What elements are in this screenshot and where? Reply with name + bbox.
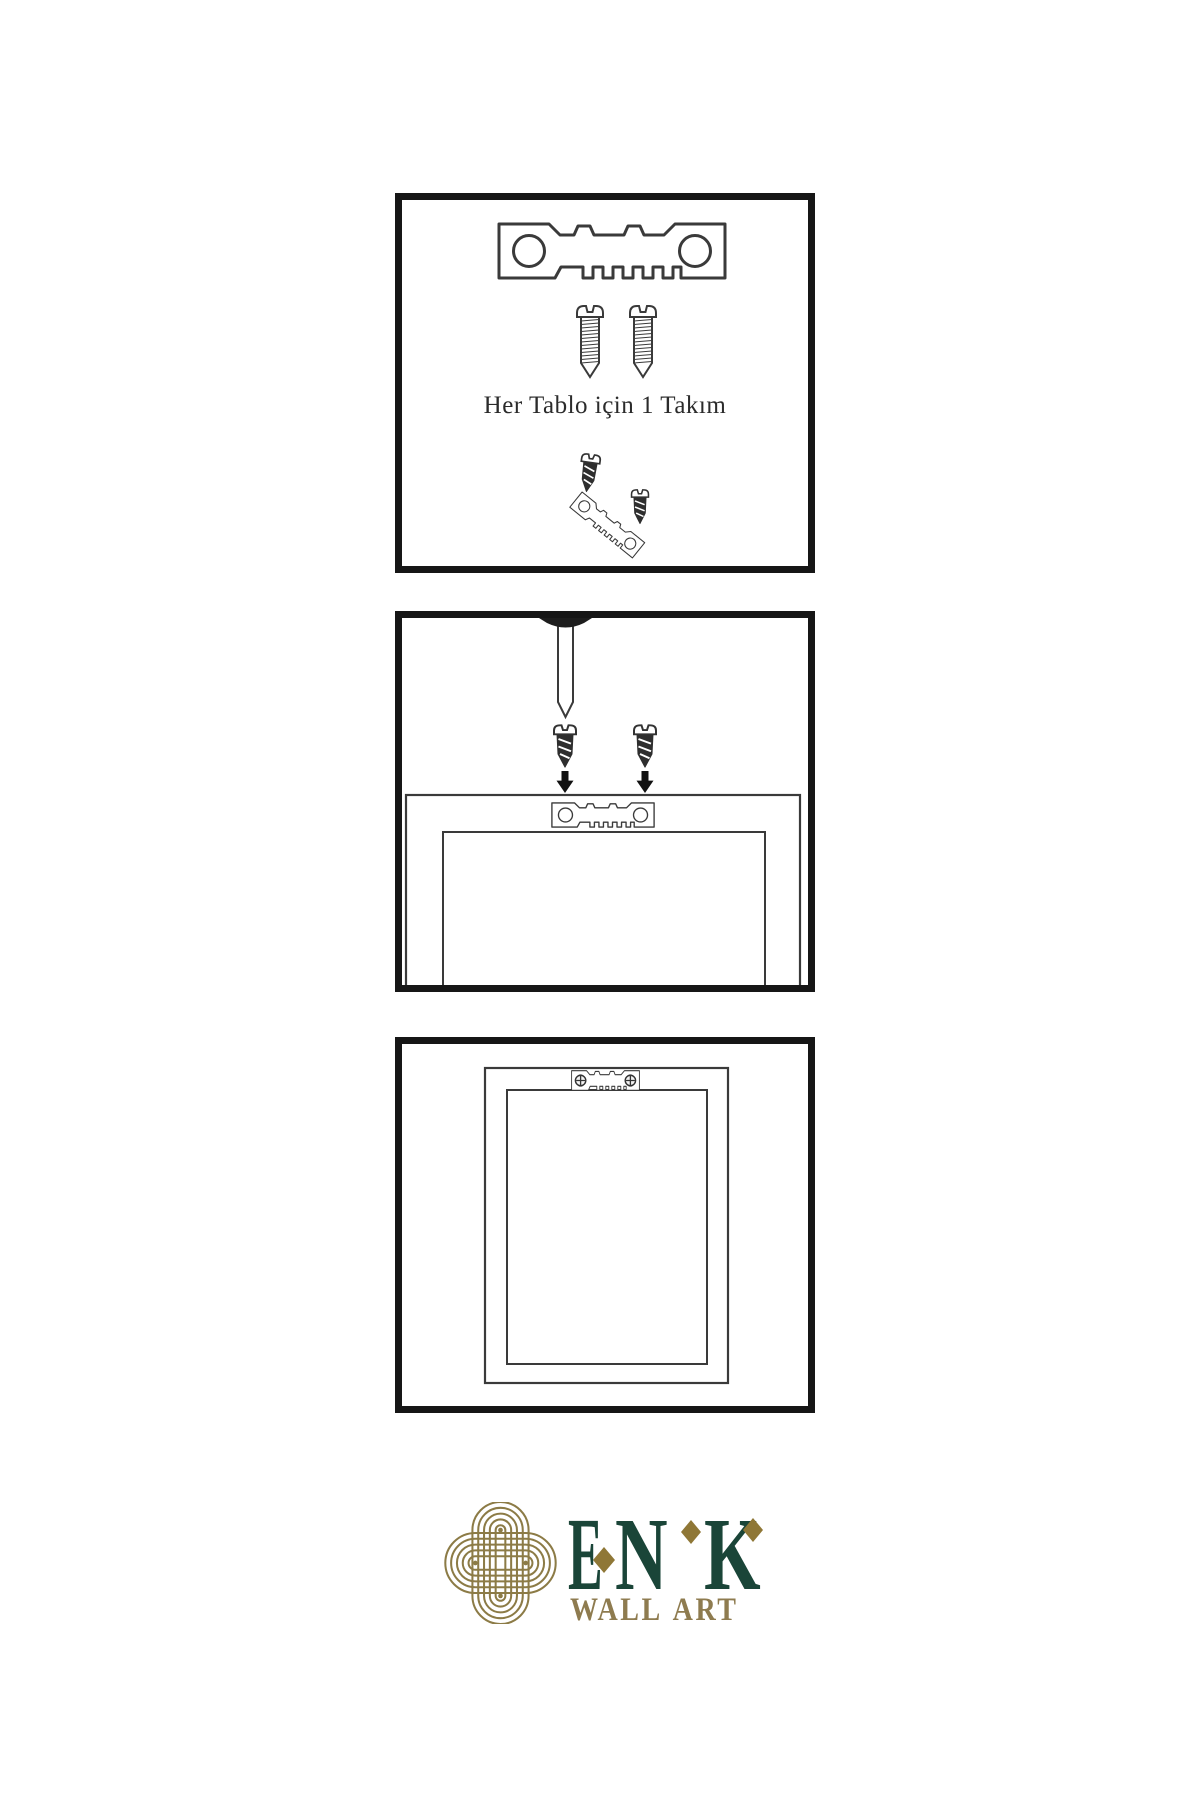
sawtooth-hanger-icon xyxy=(552,803,654,827)
frame-back-icon xyxy=(485,1068,728,1383)
phillips-screw-head-icon xyxy=(575,1075,585,1085)
step-panel-hardware-set: Her Tablo için 1 Takım xyxy=(395,193,815,573)
sawtooth-hanger-icon xyxy=(499,224,725,278)
nail-icon xyxy=(558,622,573,717)
dark-screw-icon xyxy=(632,490,649,524)
attach-hanger-illustration xyxy=(402,618,808,985)
kit-caption: Her Tablo için 1 Takım xyxy=(402,392,808,420)
dark-screw-icon xyxy=(554,725,576,767)
dark-screw-icon xyxy=(634,725,656,767)
screw-icon xyxy=(577,306,603,377)
frame-inner-outline xyxy=(443,832,765,985)
frame-inner-outline xyxy=(507,1090,707,1364)
screw-icon xyxy=(630,306,656,377)
step-panel-attach-hanger xyxy=(395,611,815,992)
brand-subtitle: WALL ART xyxy=(570,1594,739,1627)
tilted-sawtooth-hanger-icon xyxy=(570,492,645,558)
mounted-frame-illustration xyxy=(402,1044,808,1406)
hardware-set-illustration xyxy=(402,200,808,566)
dark-screw-icon xyxy=(577,453,601,493)
phillips-screw-head-icon xyxy=(625,1075,635,1085)
step-panel-hanger-mounted xyxy=(395,1037,815,1413)
arrow-down-icon xyxy=(557,771,574,793)
arrow-down-icon xyxy=(637,771,654,793)
nail-head xyxy=(539,618,592,628)
brand-diamond-icon xyxy=(681,1520,701,1544)
knot-logo-icon xyxy=(438,1502,563,1624)
